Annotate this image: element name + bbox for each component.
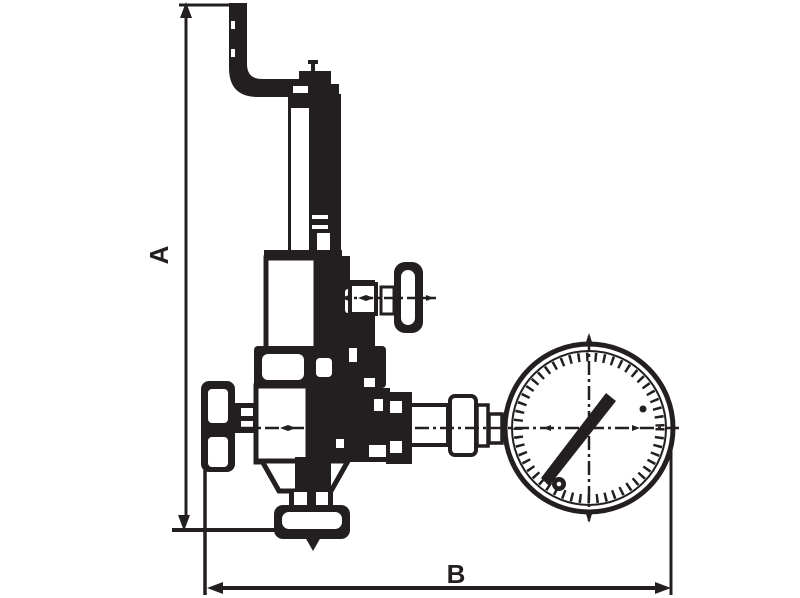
gauge-flange-bolt [390,441,402,453]
body-highlight [369,445,387,457]
valve-dimensional-drawing: A B [0,0,800,598]
union-collar [477,405,488,446]
body-highlight [336,439,344,448]
handwheel-spoke-gap [208,389,228,423]
flange-face-small [316,358,332,377]
funnel-core [295,457,331,493]
centerline-arrow-icon [586,333,592,342]
body-chamber [256,386,308,462]
lever-handle [229,3,299,97]
spindle-boss-lower [343,318,375,348]
t-handle-spindle [338,262,436,348]
bottom-outlet-flange [274,505,350,551]
valve-body [256,386,412,464]
screw-column-highlight [291,108,309,250]
dimension-b-label: B [447,559,466,589]
gauge-needle-hub-center [557,482,562,487]
handwheel [201,381,258,472]
outlet-neck-highlight [294,492,307,507]
flow-direction-arrow-icon [305,537,321,551]
handwheel-stem-highlight [241,408,253,416]
outlet-neck-highlight [316,492,328,507]
union-nut [450,396,476,455]
flange-highlight [364,378,375,387]
gauge-flange-bolt [390,401,402,413]
gauge-connection-union [410,396,510,455]
locknut-edge [312,215,328,219]
flange-face [262,354,304,380]
handle-highlight [231,21,235,29]
handwheel-spoke-gap [208,437,228,467]
drawing-canvas: A B [0,0,800,598]
spindle-shaft [381,287,394,314]
union-body [410,405,448,445]
spring-bonnet [266,256,350,352]
top-locknut [299,71,331,85]
bonnet-housing [266,258,316,352]
handle-highlight [231,49,235,57]
outlet-funnel [262,457,348,510]
centerline-arrow-icon [426,295,434,301]
gauge-dial-dot [640,406,647,413]
lever-handle-rod [229,3,299,97]
bottom-flange-face [282,512,342,529]
dimension-b-arrow-right-icon [655,582,671,594]
top-cap-highlight [293,86,308,93]
dimension-a-label: A [144,245,174,264]
flange-highlight [349,348,357,362]
upper-flange [254,346,386,388]
dimension-b-arrow-left-icon [207,582,223,594]
centerline-arrow-icon [586,514,592,523]
body-highlight [374,399,383,411]
locknut-edge [312,225,328,229]
